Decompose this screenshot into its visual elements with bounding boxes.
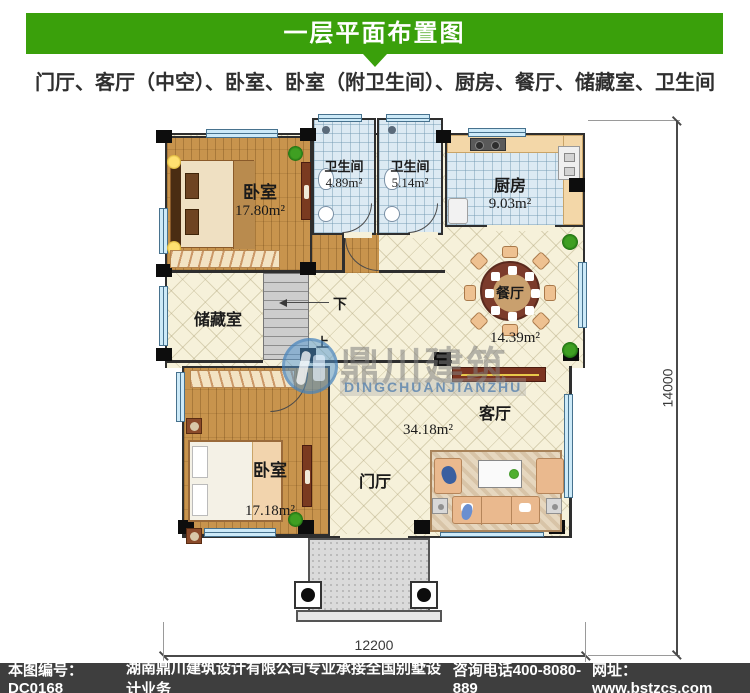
dining-chair <box>502 246 518 258</box>
footer-bar: 本图编号：DC0168 湖南鼎川建筑设计有限公司专业承接全国别墅设计业务 咨询电… <box>0 663 750 693</box>
kitchen-opening <box>487 225 555 231</box>
label-foyer: 门厅 <box>345 468 405 492</box>
window <box>176 372 185 422</box>
label-bedroom-tl: 卧室 17.80m² <box>200 178 320 220</box>
window <box>578 262 587 328</box>
column <box>414 520 430 534</box>
stove-icon <box>470 138 506 151</box>
label-living-area: 34.18m² <box>383 422 473 439</box>
dim-line-right <box>676 120 678 656</box>
label-bath-right: 卫生间 5.14m² <box>377 156 443 191</box>
window <box>159 286 168 346</box>
wall-bedroomtl-bottom <box>165 270 345 273</box>
rug-bedroom-bl <box>190 370 295 388</box>
column <box>300 128 316 141</box>
label-living: 客厅 <box>465 400 525 424</box>
nightstand-icon <box>186 528 202 544</box>
dim-height-label: 14000 <box>659 369 675 408</box>
side-table <box>546 498 562 514</box>
wall-storage-bottom <box>165 360 263 363</box>
plant-icon <box>562 234 578 250</box>
rug-bedroom-tl <box>170 250 280 268</box>
footer-phone: 咨询电话400-8080-889 <box>453 659 592 693</box>
dining-chair <box>464 285 476 301</box>
footer-website[interactable]: 网址：www.bstzcs.com <box>592 659 742 693</box>
plant-icon <box>562 342 578 358</box>
dim-ext-line <box>585 622 586 662</box>
column <box>436 130 451 143</box>
window <box>564 394 573 498</box>
watermark-logo-icon <box>282 338 338 394</box>
footprint-notch-right <box>572 368 587 538</box>
label-bedroom-bl: 卧室 17.18m² <box>210 456 330 520</box>
dim-ext-line <box>588 655 680 656</box>
label-bath-left: 卫生间 4.89m² <box>312 156 376 191</box>
side-table <box>432 498 448 514</box>
page-title: 一层平面布置图 <box>26 13 723 54</box>
bath-right-door-gap <box>410 232 438 238</box>
shower-icon <box>388 126 396 134</box>
window <box>468 128 526 137</box>
window <box>386 114 430 122</box>
watermark-en: DINGCHUANJIANZHU <box>340 378 526 396</box>
column <box>156 348 172 361</box>
stairs-direction-line <box>283 302 329 303</box>
column <box>156 130 172 143</box>
coffee-table <box>478 460 522 488</box>
footer-drawing-code: 本图编号：DC0168 <box>8 659 126 693</box>
label-kitchen: 厨房 9.03m² <box>455 172 565 213</box>
shower-icon <box>322 126 330 134</box>
floor-plan-page: 一层平面布置图 门厅、客厅（中空）、卧室、卧室（附卫生间）、厨房、餐厅、储藏室、… <box>0 0 750 693</box>
label-dining: 餐厅 <box>480 283 540 303</box>
washbasin-icon <box>384 206 400 222</box>
window <box>204 528 276 537</box>
label-storage: 储藏室 <box>168 306 268 330</box>
window <box>206 129 278 138</box>
column <box>300 262 316 275</box>
footer-company: 湖南鼎川建筑设计有限公司专业承接全国别墅设计业务 <box>126 657 453 693</box>
dining-chair <box>544 285 556 301</box>
armchair-right <box>536 458 564 494</box>
dim-ext-line <box>163 622 164 662</box>
washbasin-icon <box>318 206 334 222</box>
porch-column <box>294 581 322 609</box>
nightstand-icon <box>186 418 202 434</box>
dim-width-label: 12200 <box>324 637 424 653</box>
stairs-arrow-head <box>279 299 287 307</box>
wall-hall-top <box>379 270 445 273</box>
room-list-subtitle: 门厅、客厅（中空）、卧室、卧室（附卫生间）、厨房、餐厅、储藏室、卫生间 <box>0 66 750 95</box>
column <box>569 178 585 192</box>
floor-plan-drawing: 下 上 <box>0 100 750 660</box>
porch-column <box>410 581 438 609</box>
dim-ext-line <box>588 120 680 121</box>
window <box>318 114 362 122</box>
plant-icon <box>288 146 303 161</box>
stairs-down-label: 下 <box>333 294 347 314</box>
porch-step <box>296 610 442 622</box>
